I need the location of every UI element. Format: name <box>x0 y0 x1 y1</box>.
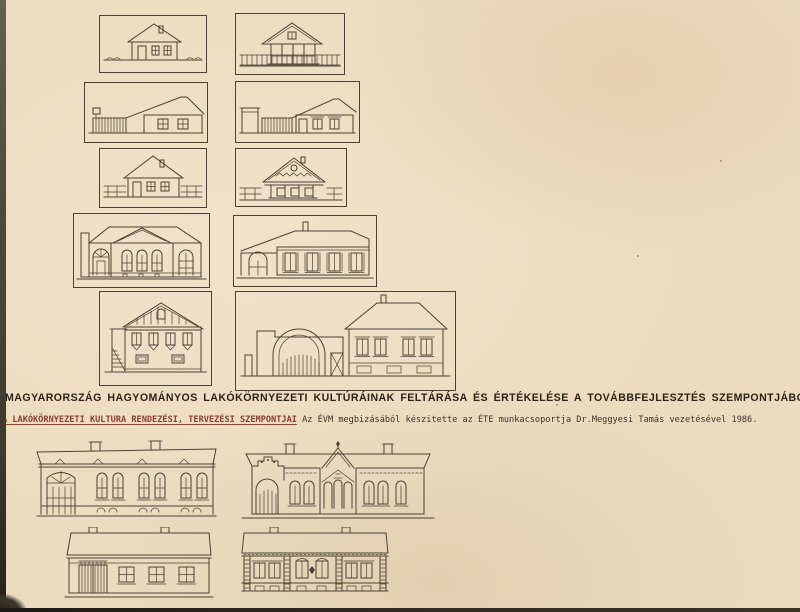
drawing-tall-hip-roof-house <box>99 148 207 208</box>
drawing-two-story-gabled-house <box>99 291 212 386</box>
paper-speck <box>637 255 639 257</box>
page-subtitle: A LAKÓKÖRNYEZETI KULTURA RENDEZÉSI, TERV… <box>2 415 798 425</box>
drawing-arch-gate-yard-house <box>235 291 456 391</box>
drawing-facade-paired-windows <box>238 527 392 602</box>
drawing-eclectic-facade-tower <box>238 440 438 524</box>
scan-edge-left <box>0 0 6 612</box>
drawing-longhouse-arched-door <box>233 215 377 287</box>
scanned-document-page: MAGYARORSZÁG HAGYOMÁNYOS LAKÓKÖRNYEZETI … <box>0 0 800 612</box>
drawing-farmhouse-plank-gate <box>235 81 360 143</box>
page-title: MAGYARORSZÁG HAGYOMÁNYOS LAKÓKÖRNYEZETI … <box>5 392 798 404</box>
drawing-simple-facade-plank-gate <box>63 527 215 602</box>
scan-edge-bottom <box>0 608 800 612</box>
drawing-neoclassical-mansion <box>73 213 210 288</box>
drawing-eclectic-facade-gateway <box>33 440 220 524</box>
paper-speck <box>556 404 558 406</box>
subtitle-credit: Az ÉVM megbizásából készitette az ÉTE mu… <box>297 415 757 425</box>
drawing-hip-roof-house <box>99 15 207 73</box>
paper-speck <box>720 160 722 162</box>
drawing-porch-house-picket-fence <box>235 13 345 75</box>
drawing-decorated-gable-house <box>235 148 347 207</box>
subtitle-underlined-red: A LAKÓKÖRNYEZETI KULTURA RENDEZÉSI, TERV… <box>2 415 297 425</box>
drawing-farmhouse-long-roof <box>84 82 208 143</box>
